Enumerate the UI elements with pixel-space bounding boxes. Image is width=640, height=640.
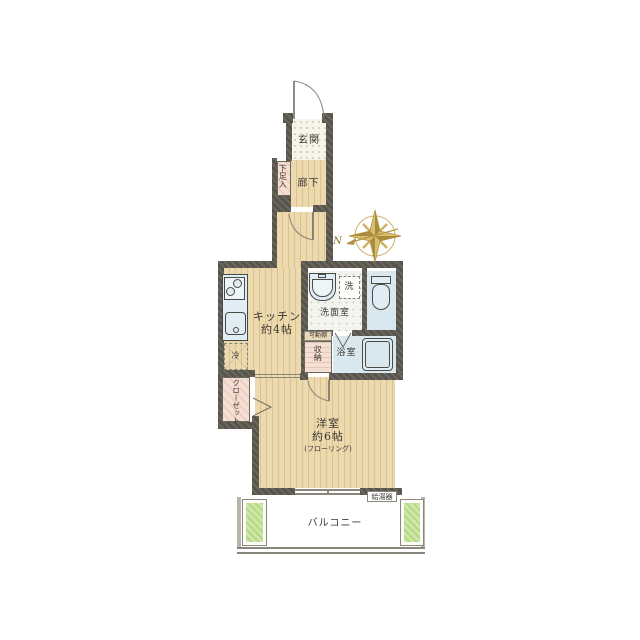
entrance-door-arc	[294, 81, 324, 117]
washer-label: 洗	[339, 282, 360, 292]
storage-door-arc	[308, 381, 329, 401]
hall-door-arc	[289, 214, 313, 240]
corridor-label: 廊下	[291, 178, 326, 190]
bedroom-label-1: 洋室	[298, 418, 358, 431]
bedroom-label-3: (フローリング)	[293, 445, 363, 453]
floor-plan: 給湯器 玄関 下足入 廊下 キッチン 約4帖 冷 クローゼット 洗 洗面室 可動…	[0, 0, 640, 640]
bathroom-fold-door	[335, 333, 351, 347]
bathroom-label: 浴室	[333, 348, 360, 358]
compass-north-label: N	[332, 236, 344, 248]
washroom-label: 洗面室	[308, 308, 362, 318]
closet-fold-door	[253, 398, 271, 416]
compass-rose	[346, 210, 401, 262]
balcony-label: バルコニー	[300, 518, 370, 530]
storage-label: 収納	[313, 345, 322, 361]
shoe-box-label: 下足入	[278, 164, 287, 188]
closet-label: クローゼット	[231, 379, 240, 424]
kitchen-label-2: 約4帖	[248, 324, 306, 337]
plan-overlay	[0, 0, 640, 640]
entrance-label: 玄関	[292, 135, 326, 147]
refrigerator-label: 冷	[224, 351, 248, 360]
compass-arrowhead	[346, 238, 356, 245]
bedroom-label-2: 約6帖	[298, 431, 358, 444]
kitchen-label-1: キッチン	[248, 311, 306, 324]
movable-shelf-label: 可動棚	[304, 333, 332, 340]
